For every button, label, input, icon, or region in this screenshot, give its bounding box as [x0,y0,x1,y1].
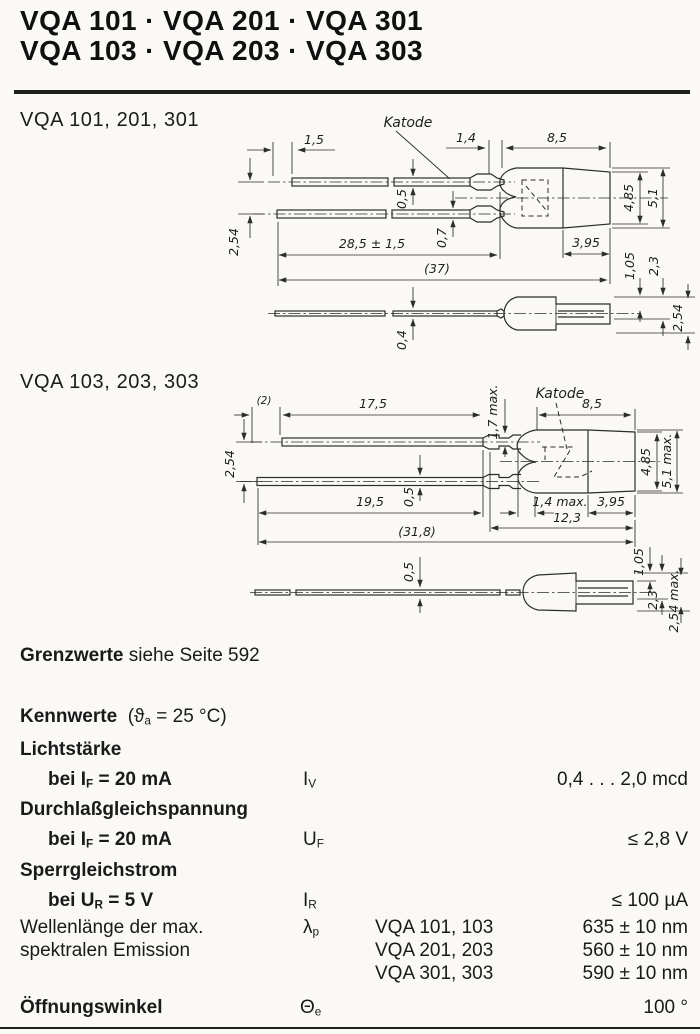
figure1-drawing: Katode 1,5 1,4 8,5 0,5 0,7 [226,115,695,350]
symbol-iv: IV [303,770,316,791]
value-iv: 0,4 . . . 2,0 mcd [557,770,688,790]
row-durchlass: Durchlaßgleichspannung [20,800,248,820]
dim-label: 2,54 [670,304,685,332]
figure2-drawing: Katode (2) 17,5 1,7 max. 8,5 2,54 [222,384,690,632]
dim-label: 17,5 [359,396,387,411]
figure2-leads [257,435,521,489]
dim-label: 1,7 max. [485,384,500,439]
figure1-dimensions: 1,5 1,4 8,5 0,5 0,7 2,54 28,5 [226,130,695,350]
dim-label: (31,8) [398,524,436,539]
figure1-side-view: 0,4 [275,287,610,350]
value-wavelength-3: 590 ± 10 nm [583,964,689,984]
dim-label: 2,3 [645,590,660,610]
grenzwerte-rest: siehe Seite 592 [123,645,259,666]
row-wellenlaenge-1: Wellenlänge der max. [20,918,203,938]
row-oeffnungswinkel: Öffnungswinkel [20,998,163,1018]
value-wavelength-2: 560 ± 10 nm [583,941,689,961]
row-wellenlaenge-2: spektralen Emission [20,941,190,961]
dim-label: 4,85 [638,448,653,476]
row-sperr: Sperrgleichstrom [20,861,177,881]
dim-label: 1,4 [456,130,476,145]
dim-label: 3,95 [572,235,600,250]
dim-label: (37) [424,261,450,276]
datasheet-page: VQA 101 · VQA 201 · VQA 301 VQA 103 · VQ… [0,0,700,1034]
dim-label: 0,5 [401,487,416,507]
figure1-leads [277,174,504,222]
value-angle: 100 ° [643,998,688,1018]
dim-label: 1,05 [631,548,646,576]
dim-label: 0,5 [401,562,416,582]
grenzwerte-label: Grenzwerte [20,645,123,666]
dim-label: 3,95 [597,494,625,509]
row-condition: bei IF = 20 mA [48,830,172,851]
dim-label: 0,4 [394,330,409,350]
dim-label: 5,1 [645,188,660,208]
symbol-ir: IR [303,891,317,912]
value-wavelength-1: 635 ± 10 nm [583,918,689,938]
dim-label: 5,1 max. [659,433,674,488]
dim-label: 19,5 [356,494,384,509]
dim-label: 8,5 [547,130,567,145]
type-list-3: VQA 301, 303 [375,964,493,984]
dim-label: 28,5 ± 1,5 [339,236,405,251]
value-uf: ≤ 2,8 V [628,830,688,850]
figure2-side-view: 0,5 1,05 2,3 2,54 max. [255,547,690,633]
row-condition: bei IF = 20 mA [48,770,172,791]
dim-label: 1,05 [622,252,637,280]
figure2-body [517,430,635,493]
dim-label: 8,5 [582,396,602,411]
value-ir: ≤ 100 µA [612,891,688,911]
symbol-theta: Θe [300,998,321,1019]
kennwerte-heading: Kennwerte (ϑa = 25 °C) [20,707,227,728]
row-condition: bei UR = 5 V [48,891,153,912]
grenzwerte-line: Grenzwerte siehe Seite 592 [20,646,260,666]
katode-label: Katode [384,115,433,131]
dim-label: 2,54 [226,228,241,256]
type-list-1: VQA 101, 103 [375,918,493,938]
bottom-divider [0,1027,700,1029]
row-lichtstaerke: Lichtstärke [20,740,121,760]
dim-label: 2,54 max. [666,569,681,632]
dim-label: (2) [257,395,272,407]
dim-label: 1,5 [304,132,324,147]
dim-label: 12,3 [553,510,581,525]
dim-label: 4,85 [621,184,636,212]
dim-label: 2,54 [222,450,237,478]
dim-label: 0,7 [434,228,449,248]
symbol-uf: UF [303,830,324,851]
dim-label: 2,3 [646,256,661,276]
type-list-2: VQA 201, 203 [375,941,493,961]
figure2-dimensions: (2) 17,5 1,7 max. 8,5 2,54 0,5 [222,384,683,547]
dim-label: 1,4 max. [532,494,587,509]
katode-label: Katode [536,386,585,402]
dim-label: 0,5 [394,189,409,209]
symbol-lambda: λp [303,918,319,939]
